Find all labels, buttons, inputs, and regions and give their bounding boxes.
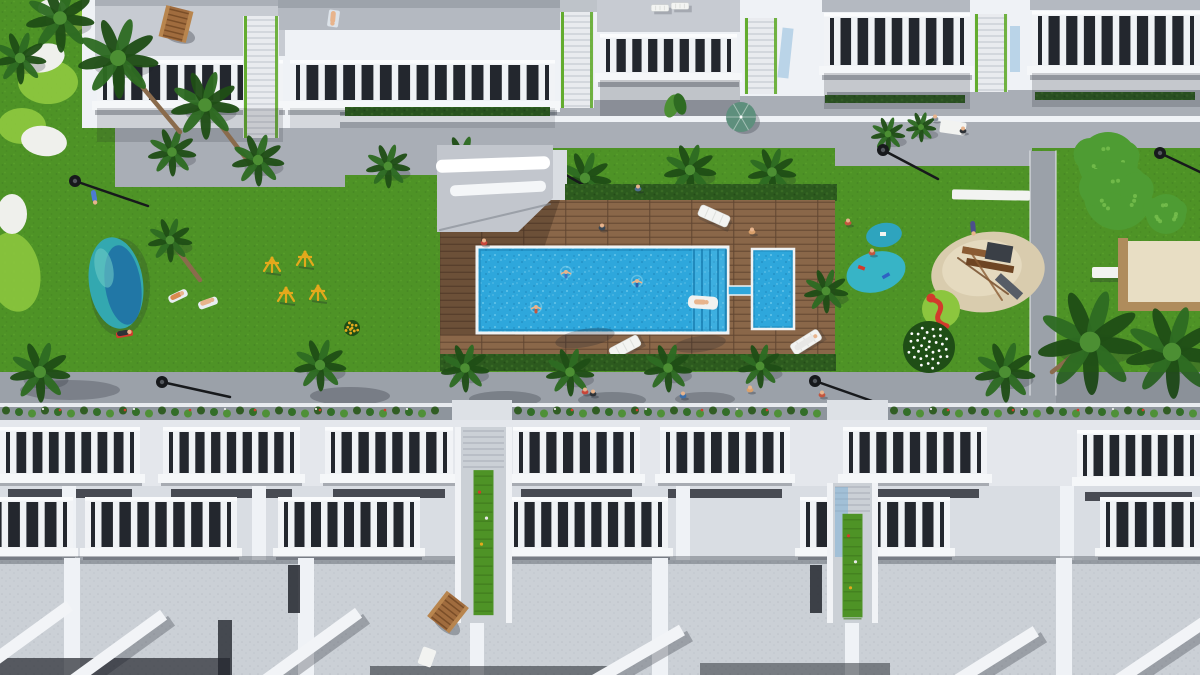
dividing-wall	[676, 486, 690, 564]
dividing-wall	[252, 486, 266, 564]
roof-lounger	[651, 5, 672, 15]
window-band	[171, 489, 292, 498]
terrace-balustrade	[508, 427, 645, 488]
building-shadow	[824, 73, 970, 109]
terrace-balustrade	[320, 427, 458, 488]
doorway	[288, 565, 300, 613]
roof-edge	[95, 0, 285, 6]
garden-stairway	[827, 483, 878, 623]
planter-strip	[0, 403, 452, 420]
bench	[952, 189, 1030, 200]
court-frame	[1118, 238, 1128, 310]
stair-landing	[452, 400, 512, 422]
patio-extension	[115, 148, 345, 187]
person-on-float	[694, 299, 709, 305]
rooftop	[597, 0, 740, 32]
patio-extension	[835, 148, 1032, 166]
play-item	[880, 232, 886, 236]
hedge	[565, 184, 837, 201]
lower-window-band	[700, 663, 890, 675]
roof-lounger	[671, 3, 692, 13]
terrace-balustrade	[655, 427, 795, 488]
rooftop	[1030, 0, 1200, 10]
terrace-balustrade	[273, 497, 425, 562]
terrace-shadow	[0, 556, 1200, 564]
terrace-balustrade	[0, 497, 78, 562]
terrace-balustrade	[819, 13, 975, 80]
building-shadow	[290, 108, 555, 128]
dividing-wall	[1060, 486, 1074, 564]
stairway	[974, 14, 1008, 92]
stairway	[744, 18, 778, 94]
terrace-balustrade	[1027, 11, 1200, 80]
scene-layers	[0, 0, 1200, 675]
dividing-wall	[64, 558, 80, 675]
glass-railing	[1010, 26, 1020, 72]
residential-complex-aerial-render	[0, 0, 1200, 675]
stairway	[560, 12, 594, 108]
window-band	[521, 489, 632, 498]
pool-channel	[728, 286, 754, 295]
terrace-balustrade	[1072, 430, 1200, 491]
flower-bush	[344, 320, 360, 336]
kids-pool	[752, 249, 794, 329]
window-band	[333, 489, 445, 498]
planter-strip	[888, 403, 1200, 420]
building-shadow	[1032, 73, 1200, 107]
planter-strip	[512, 403, 827, 420]
rooftop	[822, 0, 970, 12]
terrace-balustrade	[158, 427, 305, 488]
swimming-pool	[477, 247, 728, 333]
terrace-balustrade	[285, 60, 560, 115]
doorway	[810, 565, 822, 613]
lower-window-band	[370, 666, 610, 675]
terrace-balustrade	[838, 427, 992, 488]
stair-landing	[827, 400, 888, 422]
flowering-bush	[903, 321, 955, 373]
terrace-balustrade	[1095, 497, 1200, 562]
terrace-balustrade	[0, 427, 145, 488]
garden-stairway	[455, 427, 512, 623]
slide-top	[927, 294, 936, 303]
roof-edge	[278, 0, 560, 8]
terrace-balustrade	[80, 497, 242, 562]
dividing-wall	[1056, 558, 1072, 675]
sports-court	[1128, 241, 1200, 302]
aerial-render-viewport	[0, 0, 1200, 675]
terrace-balustrade	[503, 497, 673, 562]
terrace-balustrade	[595, 34, 742, 87]
